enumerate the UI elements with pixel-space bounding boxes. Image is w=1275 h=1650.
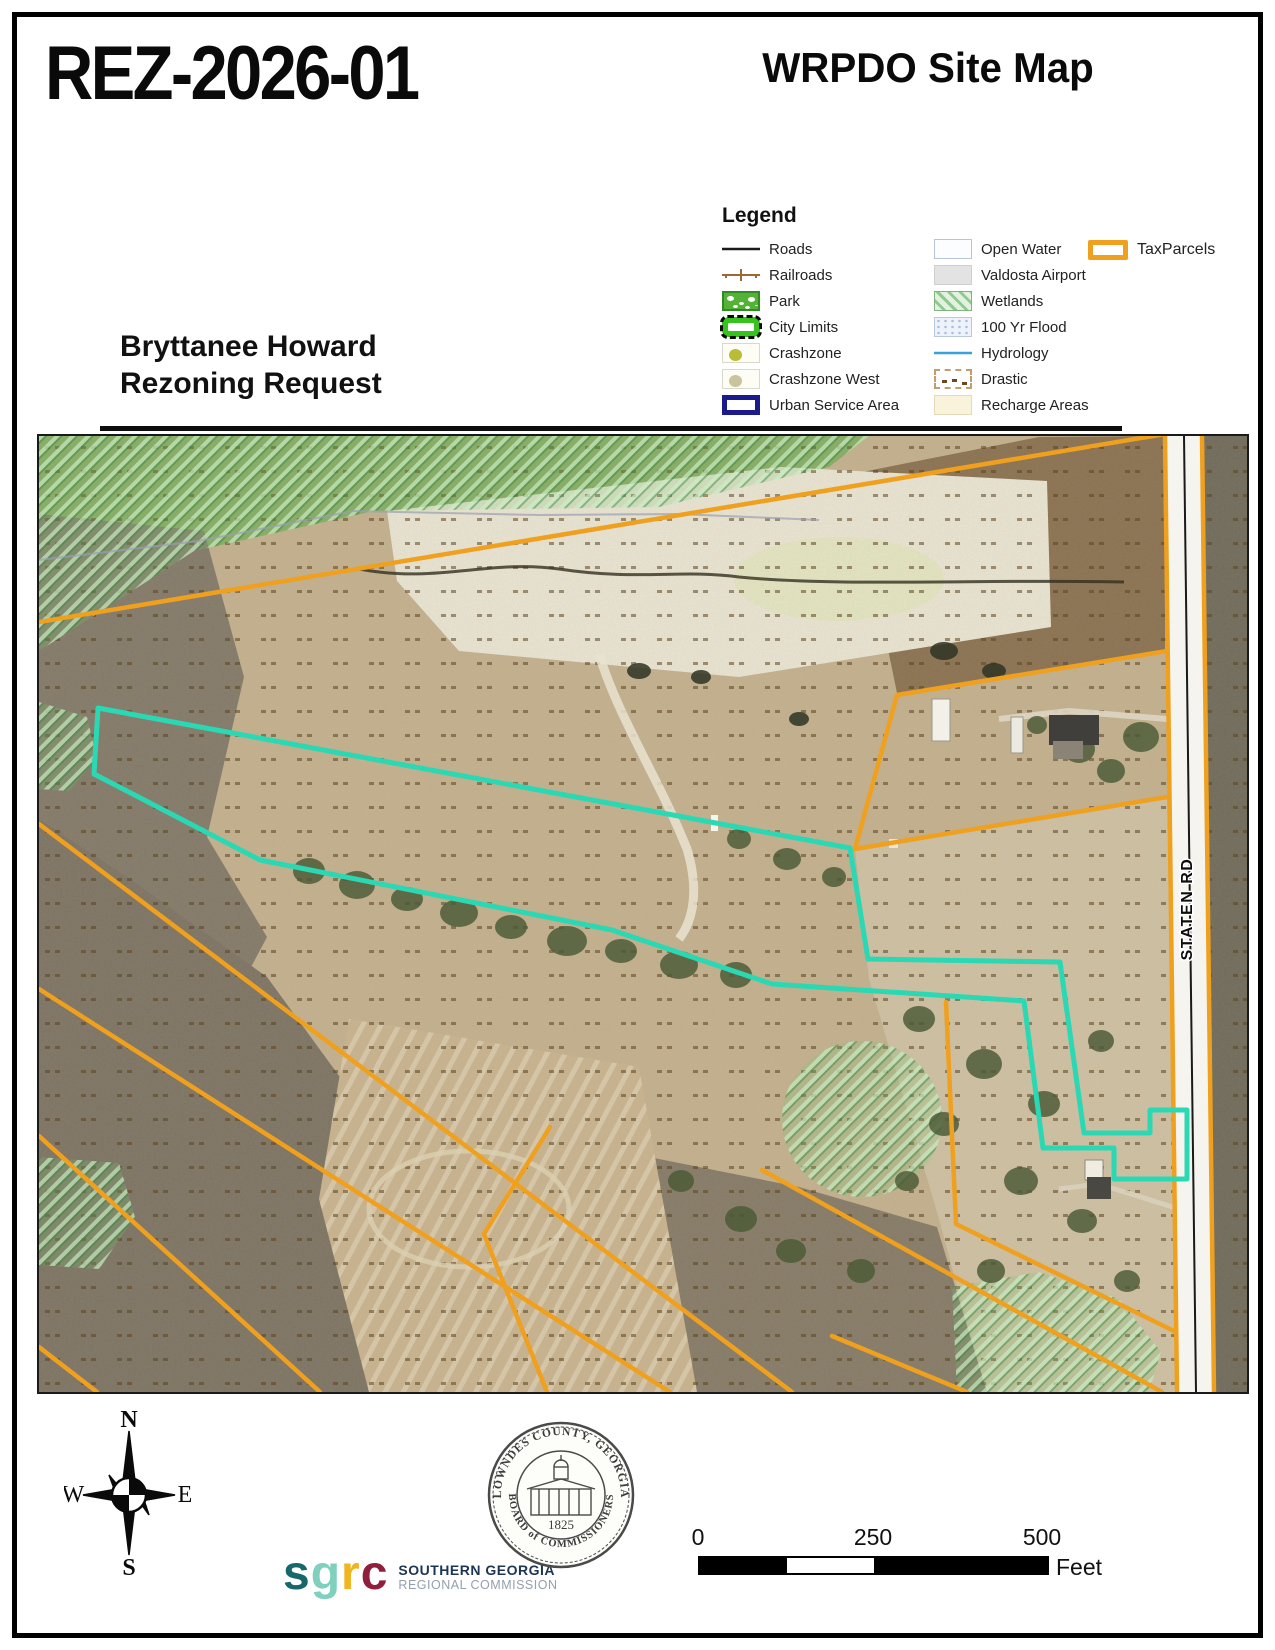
legend-item-crashzone-west: Crashzone West (722, 366, 899, 392)
legend-item-hydrology: Hydrology (934, 340, 1089, 366)
park-swatch-icon (722, 291, 760, 311)
sgrc-letter-g: g (311, 1547, 341, 1600)
legend-title: Legend (722, 204, 797, 228)
legend-item-park: Park (722, 288, 899, 314)
sgrc-org-line2: REGIONAL COMMISSION (398, 1578, 557, 1593)
legend-item-city-limits: City Limits (722, 314, 899, 340)
rezoning-request-label: Bryttanee Howard Rezoning Request (120, 328, 382, 402)
map-canvas: STATEN RD (39, 436, 1247, 1392)
hydrology-line-icon (934, 343, 972, 363)
legend-column-2: Open Water Valdosta Airport Wetlands 100… (934, 236, 1089, 418)
map-document-page: REZ-2026-01 WRPDO Site Map Bryttanee How… (0, 0, 1275, 1650)
urban-service-area-swatch-icon (722, 395, 760, 415)
sgrc-wordmark-icon: sgrc (283, 1552, 388, 1596)
roads-line-icon (722, 239, 760, 259)
scale-tick-500: 500 (1012, 1524, 1072, 1551)
compass-rose-icon: N S W E (64, 1408, 194, 1578)
flood-swatch-icon (934, 317, 972, 337)
compass-north-label: N (120, 1408, 138, 1433)
legend-item-roads: Roads (722, 236, 899, 262)
legend-item-valdosta-airport: Valdosta Airport (934, 262, 1089, 288)
map-title: WRPDO Site Map (709, 44, 1147, 92)
legend: Legend Roads Railroads Park City Limits … (715, 196, 1230, 434)
scale-segment-white (787, 1558, 874, 1573)
compass-rose: N S W E (64, 1408, 194, 1583)
drastic-swatch-icon (934, 369, 972, 389)
scale-tick-250: 250 (843, 1524, 903, 1551)
sgrc-letter-c: c (361, 1547, 389, 1600)
open-water-swatch-icon (934, 239, 972, 259)
legend-item-urban-service-area: Urban Service Area (722, 392, 899, 418)
legend-item-open-water: Open Water (934, 236, 1089, 262)
airport-swatch-icon (934, 265, 972, 285)
city-limits-swatch-icon (722, 317, 760, 337)
legend-item-railroads: Railroads (722, 262, 899, 288)
staten-rd-label: STATEN RD (1179, 858, 1196, 961)
sgrc-letter-s: s (283, 1547, 311, 1600)
compass-west-label: W (64, 1482, 85, 1508)
recharge-swatch-icon (934, 395, 972, 415)
legend-item-100yr-flood: 100 Yr Flood (934, 314, 1089, 340)
case-number-title: REZ-2026-01 (45, 30, 417, 117)
scale-segment-black-2 (874, 1558, 1048, 1573)
scale-tick-0: 0 (668, 1524, 728, 1551)
aerial-site-map: STATEN RD (37, 434, 1249, 1394)
compass-south-label: S (122, 1555, 135, 1578)
county-seal: LOWNDES COUNTY, GEORGIA BOARD of COMMISS… (486, 1420, 636, 1575)
legend-item-drastic: Drastic (934, 366, 1089, 392)
request-line2: Rezoning Request (120, 365, 382, 402)
legend-item-crashzone: Crashzone (722, 340, 899, 366)
railroad-line-icon (722, 265, 760, 285)
legend-item-recharge-areas: Recharge Areas (934, 392, 1089, 418)
tax-parcels-swatch-icon (1088, 240, 1128, 260)
sgrc-letter-r: r (341, 1547, 361, 1600)
crashzone-swatch-icon (722, 343, 760, 363)
legend-column-1: Roads Railroads Park City Limits Crashzo… (722, 236, 899, 418)
scale-bar-segments (698, 1556, 1049, 1575)
seal-year: 1825 (548, 1517, 574, 1532)
drastic-dot-overlay (39, 436, 1247, 1392)
crashzone-west-swatch-icon (722, 369, 760, 389)
wetlands-swatch-icon (934, 291, 972, 311)
legend-item-wetlands: Wetlands (934, 288, 1089, 314)
scale-bar: 0 250 500 Feet (690, 1524, 1120, 1594)
request-line1: Bryttanee Howard (120, 328, 382, 365)
compass-east-label: E (178, 1482, 193, 1508)
legend-item-tax-parcels: TaxParcels (1088, 240, 1215, 260)
scale-segment-black-1 (700, 1558, 787, 1573)
scale-unit-label: Feet (1056, 1554, 1102, 1581)
county-seal-icon: LOWNDES COUNTY, GEORGIA BOARD of COMMISS… (486, 1420, 636, 1570)
